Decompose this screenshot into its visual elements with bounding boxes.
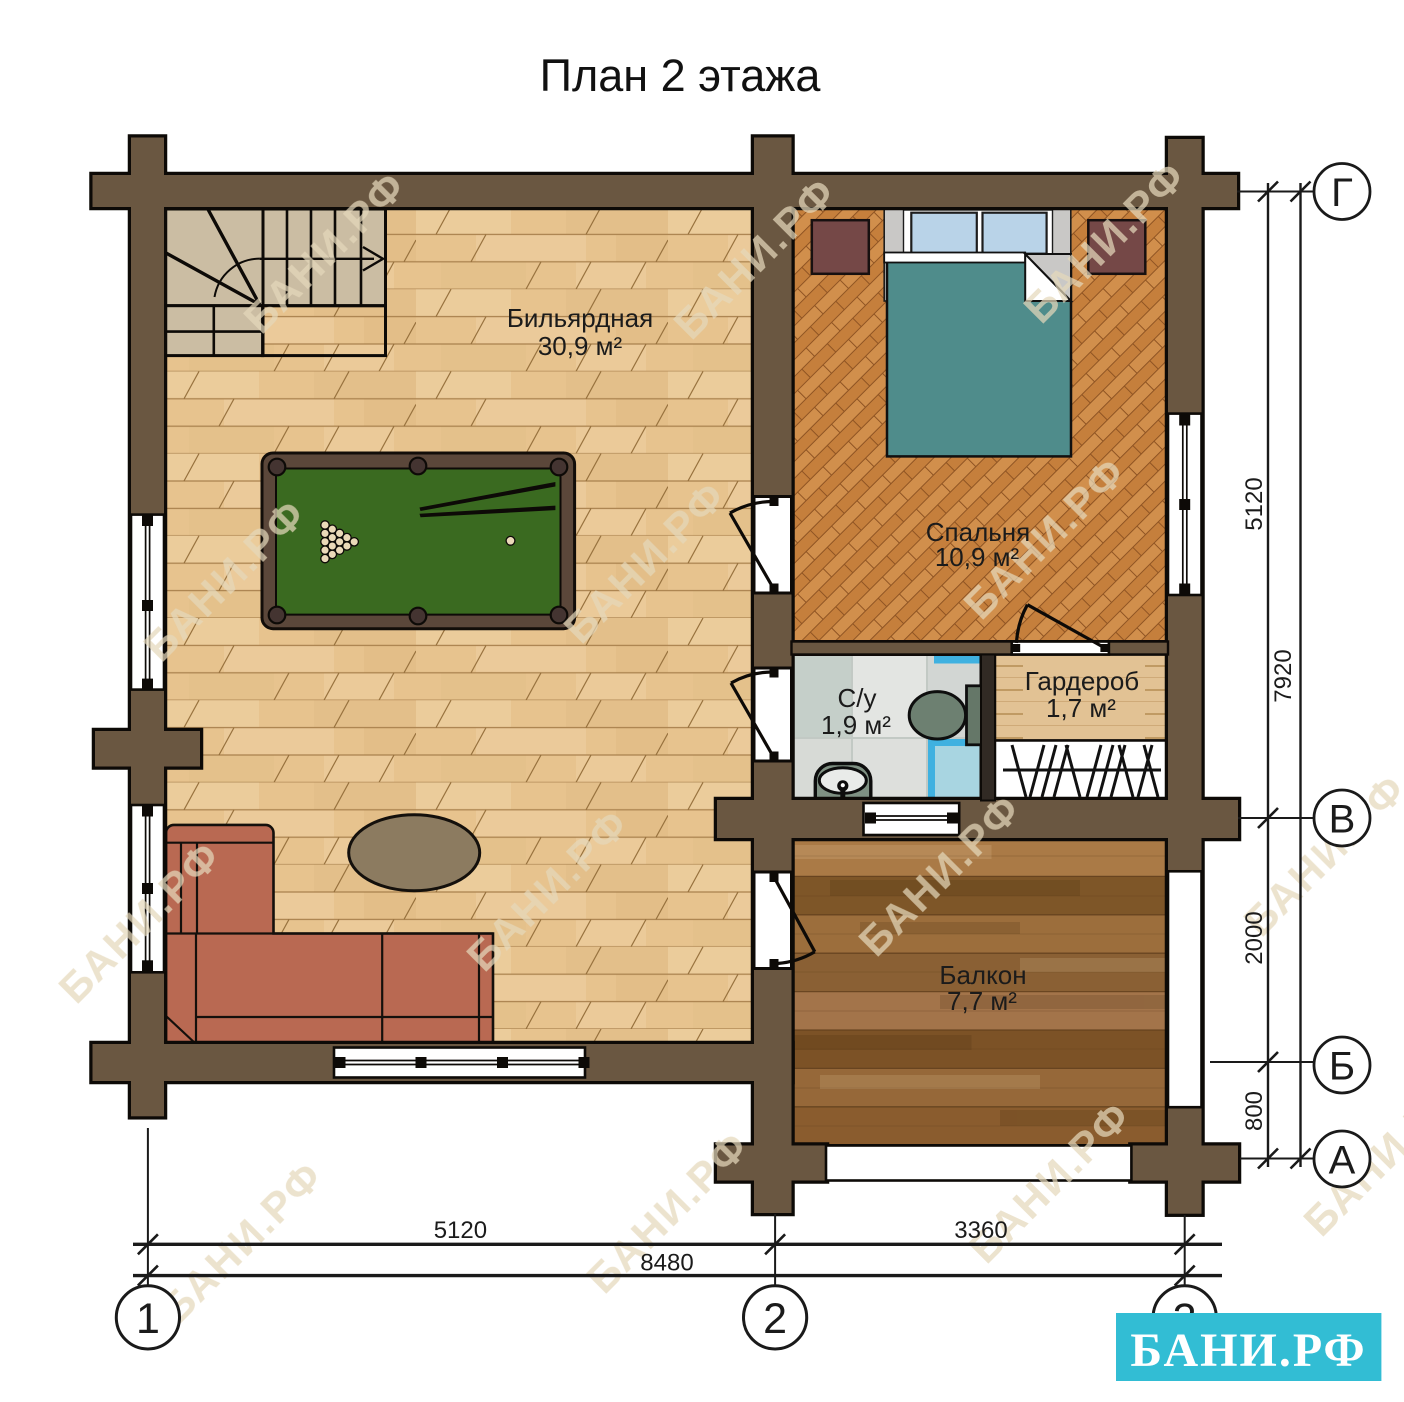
- svg-text:1,9 м²: 1,9 м²: [821, 710, 891, 740]
- svg-text:Гардероб: Гардероб: [1025, 666, 1139, 696]
- svg-text:30,9 м²: 30,9 м²: [538, 331, 623, 361]
- svg-text:План 2 этажа: План 2 этажа: [540, 50, 822, 101]
- svg-text:800: 800: [1241, 1091, 1268, 1131]
- svg-text:2: 2: [763, 1295, 787, 1343]
- svg-text:7,7 м²: 7,7 м²: [947, 986, 1017, 1016]
- svg-text:5120: 5120: [1241, 477, 1268, 530]
- svg-text:Б: Б: [1329, 1044, 1355, 1088]
- svg-text:5120: 5120: [434, 1217, 487, 1244]
- svg-text:Г: Г: [1331, 171, 1353, 215]
- svg-text:7920: 7920: [1270, 649, 1297, 702]
- svg-text:2000: 2000: [1241, 911, 1268, 964]
- svg-text:БАНИ.РФ: БАНИ.РФ: [1130, 1324, 1366, 1377]
- svg-text:10,9 м²: 10,9 м²: [935, 542, 1020, 572]
- svg-text:8480: 8480: [640, 1250, 693, 1277]
- svg-text:А: А: [1329, 1138, 1356, 1182]
- svg-text:В: В: [1329, 797, 1356, 841]
- svg-text:3360: 3360: [954, 1217, 1007, 1244]
- svg-text:1: 1: [136, 1295, 160, 1343]
- svg-text:С/у: С/у: [838, 683, 877, 713]
- svg-text:Бильярдная: Бильярдная: [507, 303, 653, 333]
- svg-text:1,7 м²: 1,7 м²: [1046, 693, 1116, 723]
